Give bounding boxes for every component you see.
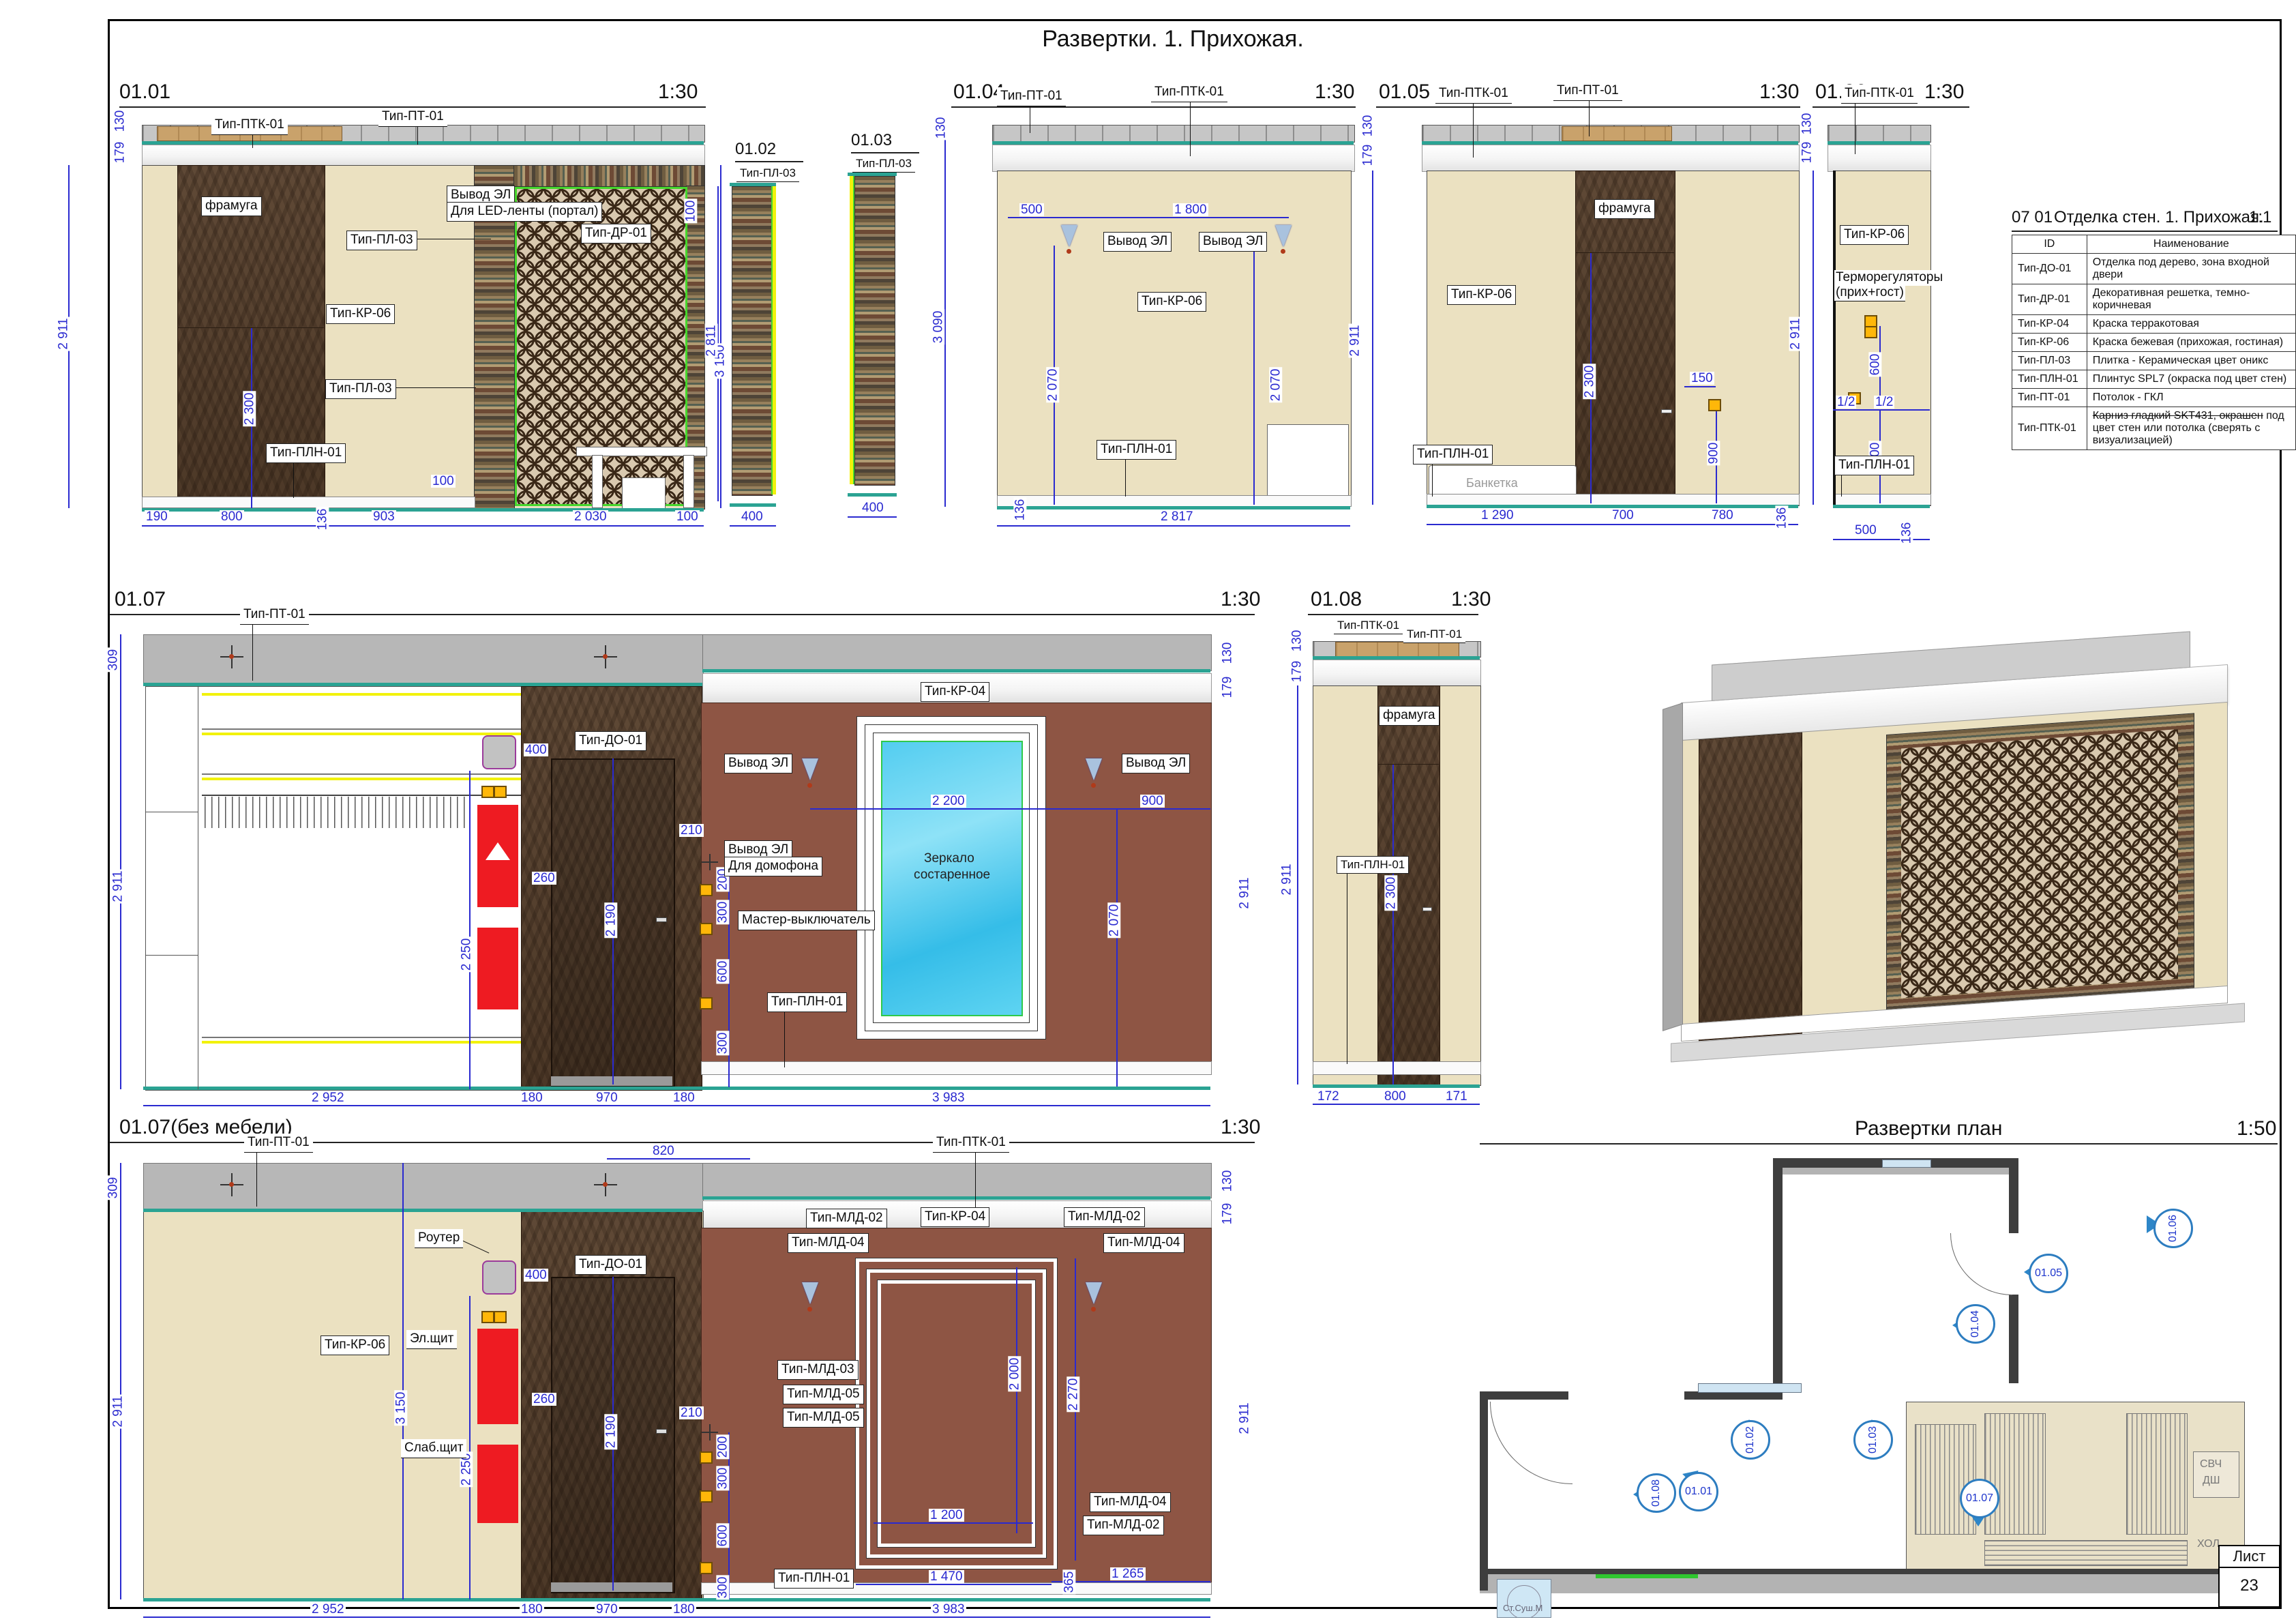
dim-1200-0107b: 1 200: [929, 1509, 964, 1522]
sconce-outlet-dot: [807, 1307, 812, 1312]
plan-marker-0105: 01.05: [2029, 1254, 2068, 1293]
legend-name: Плитка - Керамическая цвет оникс: [2087, 352, 2295, 370]
dim-2811-0102: 2 811: [705, 323, 718, 357]
wardrobe-shelf: [202, 773, 521, 775]
title-block: Лист 23: [2218, 1545, 2280, 1608]
legend-name-strike: Карниз гладкий SKT431, окрашен: [2093, 410, 2263, 422]
dim-2200-0107: 2 200: [931, 795, 966, 808]
leader: [256, 1149, 257, 1207]
leader: [252, 621, 253, 681]
ceiling-line-0106: [1828, 141, 1930, 145]
switch-icon: [700, 884, 713, 896]
ceiling-marker-dot: [603, 654, 608, 659]
cornice-0106: [1828, 145, 1931, 172]
elev-0107-scale: 1:30: [1221, 588, 1260, 611]
legend-id: Тип-КР-04: [2012, 315, 2087, 334]
plinth-0101: [142, 497, 475, 508]
top-line-0102: [730, 183, 776, 186]
dim-970-0107: 970: [595, 1091, 619, 1104]
leader: [1841, 472, 1842, 497]
plan-scale: 1:50: [2237, 1117, 2276, 1140]
label-pln-0107: Тип-ПЛН-01: [767, 992, 847, 1012]
label-pln-0105: Тип-ПЛН-01: [1413, 445, 1493, 464]
dim-line: [1016, 1267, 1017, 1533]
hanger-icon: [486, 842, 510, 860]
dim-200-0107b: 200: [716, 1435, 729, 1460]
dim-2911r-0107b: 2 911: [1238, 1401, 1251, 1435]
sconce-icon: [1275, 225, 1292, 247]
router-box: [482, 735, 516, 769]
dim-line: [997, 525, 1350, 527]
label-kr04-0107: Тип-КР-04: [921, 682, 989, 702]
plinth-0108: [1313, 1061, 1481, 1075]
label-do01-0107b: Тип-ДО-01: [575, 1255, 646, 1275]
led-strip-0103: [850, 176, 854, 484]
legend-id: Тип-КР-06: [2012, 334, 2087, 352]
label-pt-0104: Тип-ПТ-01: [997, 87, 1066, 106]
plan-wall-upper-right: [2009, 1158, 2018, 1233]
leader: [1432, 461, 1433, 497]
dim-172-0108: 172: [1316, 1090, 1341, 1103]
switch-icon: [700, 1562, 713, 1574]
plan-underline: [1480, 1143, 2278, 1145]
dim-line: [142, 525, 704, 527]
switch-icon: [700, 1451, 713, 1464]
label-vyvodR-0107: Вывод ЭЛ: [1122, 754, 1190, 773]
plan-wall-left: [1480, 1400, 1488, 1591]
plan-wall-upper-left: [1773, 1158, 1783, 1383]
dim-line: [402, 1163, 404, 1599]
plan-marker-0108: 01.08: [1637, 1473, 1676, 1513]
elev-0101-scale: 1:30: [658, 80, 698, 104]
thermostat-icon: [1864, 326, 1877, 338]
label-pt-0107: Тип-ПТ-01: [240, 606, 309, 625]
label-framuga-0105: фрамуга: [1594, 199, 1655, 219]
elev-0107b-scale: 1:30: [1221, 1116, 1260, 1139]
wardrobe-divider: [198, 686, 198, 1089]
label-pl03-0102: Тип-ПЛ-03: [736, 165, 799, 182]
legend-scale: 1:1: [2249, 208, 2271, 227]
plan-label-svch: СВЧ: [2200, 1458, 2222, 1471]
dim-600-0106: 600: [1868, 353, 1881, 377]
onyx-band-0101: [513, 165, 705, 187]
dim-2250-0107: 2 250: [460, 937, 473, 973]
dim-180a-0107b: 180: [520, 1603, 544, 1616]
drawing-sheet: Развертки. 1. Прихожая. 01.01 1:30 Тип-П…: [0, 0, 2296, 1624]
label-pt-0105: Тип-ПТ-01: [1553, 82, 1622, 101]
dim-line: [1297, 685, 1298, 1084]
dim-2911r-0107: 2 911: [1238, 876, 1251, 910]
dim-700-0105: 700: [1611, 509, 1635, 522]
dim-400-0102: 400: [740, 510, 764, 523]
dim-2070-0107: 2 070: [1107, 903, 1120, 939]
marker-text: 01.05: [2035, 1267, 2062, 1280]
dim-100mid-0101: 100: [431, 475, 456, 488]
plan-marker-0106: 01.06: [2153, 1209, 2193, 1248]
legend-name: Декоративная решетка, темно-коричневая: [2087, 284, 2295, 315]
ceiling-line-0107: [143, 683, 702, 686]
dim-260-0107b: 260: [532, 1393, 556, 1406]
dim-300b-0107b: 300: [716, 1576, 729, 1600]
dim-line: [469, 1296, 471, 1599]
dim-136-0106: 136: [1900, 521, 1913, 546]
label-ptk-0101: Тип-ПТК-01: [211, 116, 288, 135]
dim-800-0101: 800: [220, 510, 244, 523]
dim-2952-0107: 2 952: [310, 1091, 346, 1104]
dim-1265-0107b: 1 265: [1110, 1567, 1146, 1580]
dim-780-0105: 780: [1710, 509, 1735, 522]
elev-0106-scale: 1:30: [1924, 80, 1964, 104]
dim-line: [143, 1616, 1210, 1618]
dim-2911-0108: 2 911: [1281, 862, 1294, 896]
led-strip-0102: [771, 186, 776, 494]
dim-2911-0106: 2 911: [1789, 316, 1802, 351]
dim-line: [120, 634, 121, 1089]
leader: [416, 239, 491, 239]
low-current-panel: [477, 1445, 518, 1523]
dim-300b-0107: 300: [716, 1031, 729, 1056]
label-thermo2-0106: (прих+гост): [1834, 285, 1905, 301]
dim-136-0104: 136: [1013, 498, 1026, 522]
dim-2190-0107b: 2 190: [604, 1415, 617, 1450]
dim-line: [1392, 764, 1394, 1084]
label-pln-0107b: Тип-ПЛН-01: [774, 1569, 854, 1589]
plan-marker-0104: 01.04: [1956, 1304, 1995, 1344]
elev-0108-id: 01.08: [1311, 588, 1362, 611]
dim-2300-0108: 2 300: [1384, 876, 1397, 911]
dim-190-0101: 190: [145, 510, 169, 523]
label-pl03-0103: Тип-ПЛ-03: [852, 156, 915, 173]
cornice-0108: [1313, 660, 1481, 687]
plan-label-dsh: ДШ: [2203, 1475, 2220, 1487]
dim-line: [1313, 1104, 1480, 1105]
label-kr06-0105: Тип-КР-06: [1447, 285, 1516, 305]
label-pln-0108: Тип-ПЛН-01: [1337, 856, 1409, 874]
label-kr04-0107b: Тип-КР-04: [921, 1207, 989, 1227]
sconce-outlet-dot: [1091, 783, 1096, 788]
legend-name: Краска терракотовая: [2087, 315, 2295, 334]
elev-0104-scale: 1:30: [1315, 80, 1354, 104]
cabinet-0104: [1267, 424, 1349, 501]
door-handle-0107: [656, 917, 667, 922]
3d-view: [1650, 641, 2278, 1084]
plinth-0107: [701, 1061, 1212, 1075]
sconce-icon: [1086, 758, 1102, 780]
legend-name: Карниз гладкий SKT431, окрашен под цвет …: [2087, 407, 2295, 450]
plinth-0104: [997, 495, 1352, 507]
dim-600-0107: 600: [716, 960, 729, 984]
ceiling-line-0101: [142, 141, 704, 145]
dim-half2-0106: 1/2: [1874, 396, 1894, 409]
electrical-panel: [477, 1329, 518, 1424]
label-vyvod2-0104: Вывод ЭЛ: [1199, 232, 1267, 252]
sheet-title: Развертки. 1. Прихожая.: [955, 26, 1391, 53]
plinth-0105: [1427, 494, 1800, 505]
dim-800-0108: 800: [1383, 1090, 1407, 1103]
dim-970-0107b: 970: [595, 1603, 619, 1616]
dim-210-0107: 210: [679, 824, 704, 837]
legend-id: Тип-ПТ-01: [2012, 389, 2087, 407]
elev-0103-underline: [851, 152, 919, 153]
dim-100r-0101: 100: [684, 199, 697, 224]
elev-0105-scale: 1:30: [1759, 80, 1799, 104]
leader: [1190, 98, 1191, 156]
leader: [975, 1149, 976, 1213]
label-pt-0107b: Тип-ПТ-01: [244, 1134, 313, 1153]
plan-washer: Ст.Суш.М: [1497, 1579, 1551, 1618]
dim-line: [1116, 808, 1118, 1087]
dim-180b-0107b: 180: [672, 1603, 696, 1616]
label-ptk-0108: Тип-ПТК-01: [1334, 617, 1403, 634]
dim-line: [856, 1584, 1052, 1585]
label-kr06-0107b: Тип-КР-06: [320, 1335, 389, 1355]
door-handle-0105: [1661, 409, 1672, 413]
wardrobe-shelf: [202, 728, 521, 730]
tile-strip-0102: [732, 186, 773, 496]
socket-icon: [481, 786, 494, 798]
floor-line-0106: [1833, 505, 1930, 508]
top-line-0103: [848, 173, 897, 176]
elev-0102-id: 01.02: [735, 140, 776, 159]
label-framuga-0101: фрамуга: [201, 196, 262, 216]
dim-900-0107: 900: [1140, 795, 1165, 808]
dim-1470-0107b: 1 470: [929, 1570, 964, 1583]
wardrobe-shelf: [202, 1037, 521, 1038]
ceiling-line-0107r: [702, 669, 1210, 673]
low-current-panel: [477, 928, 518, 1009]
dim-2911-0105: 2 911: [1349, 323, 1362, 357]
dim-line: [720, 165, 721, 508]
led-shelf-strip: [202, 1041, 521, 1044]
label-ptk-0106: Тип-ПТК-01: [1841, 85, 1918, 104]
switch-icon: [700, 1490, 713, 1503]
label-pt-0108: Тип-ПТ-01: [1403, 626, 1465, 643]
dim-2300-0105: 2 300: [1583, 364, 1596, 400]
plan-closet-section: [1915, 1424, 1976, 1535]
dim-2911-0107b: 2 911: [112, 1394, 125, 1428]
dim-820-0107b: 820: [651, 1145, 676, 1157]
3d-wall: [1681, 702, 2228, 1042]
elev-0105-id: 01.05: [1379, 80, 1430, 104]
legend-name: Плинтус SPL7 (окраска под цвет стен): [2087, 370, 2295, 389]
tile-strip-0103: [854, 176, 895, 486]
dim-130r-0107: 130: [1221, 641, 1234, 666]
legend-underline: [2012, 231, 2278, 232]
dim-309-0107: 309: [106, 648, 119, 673]
label-do01-0107: Тип-ДО-01: [575, 731, 646, 751]
label-pl03a-0101: Тип-ПЛ-03: [346, 231, 417, 250]
plan-marker-0107: 01.07: [1960, 1479, 1999, 1518]
legend-id: Тип-ПЛН-01: [2012, 370, 2087, 389]
outlet-cross: [702, 1432, 718, 1433]
label-router-0107b: Роутер: [415, 1229, 463, 1248]
dim-900-0105: 900: [1707, 441, 1720, 466]
marker-text: 01.07: [1966, 1492, 1993, 1505]
ceiling-line-0108: [1313, 656, 1480, 660]
dim-179r-0107: 179: [1221, 675, 1234, 700]
ceiling-wood-0108: [1335, 642, 1459, 657]
sconce-icon: [1086, 1282, 1102, 1304]
dim-500-0104: 500: [1019, 203, 1044, 216]
floor-line-0107: [143, 1087, 1210, 1090]
ceiling-marker-dot: [229, 1182, 234, 1187]
dim-1290-0105: 1 290: [1480, 509, 1515, 522]
finish-legend-table: IDНаименование Тип-ДО-01Отделка под дере…: [2012, 235, 2296, 450]
cornice-0101: [142, 145, 705, 166]
dim-line: [143, 1105, 1210, 1106]
dim-400-0107b: 400: [524, 1269, 548, 1282]
dim-130-0106: 130: [1800, 112, 1813, 136]
plan-closet-section: [1984, 1413, 2046, 1535]
leader: [1473, 100, 1474, 158]
legend-id: Тип-ПЛ-03: [2012, 352, 2087, 370]
label-dr01-0101: Тип-ДР-01: [581, 224, 651, 243]
panel-joint: [1377, 764, 1439, 765]
elev-0105-underline: [1376, 106, 1800, 108]
dim-179r-0107b: 179: [1221, 1202, 1234, 1226]
label-pln-0106: Тип-ПЛН-01: [1834, 456, 1914, 475]
ceiling-line-0105: [1422, 141, 1798, 145]
hangers-row: [205, 797, 471, 828]
led-shelf-strip: [202, 733, 521, 735]
leader: [784, 1009, 785, 1067]
dim-903-0101: 903: [372, 510, 396, 523]
door-threshold: [551, 1582, 672, 1592]
ceiling-right-0107b: [702, 1163, 1212, 1198]
plan-niche: [1698, 1383, 1802, 1393]
3d-lattice: [1901, 729, 2178, 998]
ceiling-marker-dot: [603, 1182, 608, 1187]
dim-2300-0101: 2 300: [243, 392, 256, 427]
dim-130r-0107b: 130: [1221, 1169, 1234, 1194]
ceiling-line-0104: [992, 141, 1354, 145]
elev-0102-underline: [735, 161, 803, 162]
ceiling-line-0107b: [143, 1209, 702, 1212]
floor-line-0103: [848, 493, 897, 497]
plan-closet-shelf: [1984, 1540, 2188, 1566]
dim-line: [1372, 171, 1373, 505]
console-leg-0101: [683, 455, 694, 508]
plan-title: Развертки план: [1855, 1117, 2002, 1140]
dim-line: [1427, 524, 1798, 525]
dim-2817-0104: 2 817: [1159, 510, 1195, 523]
legend-name: Отделка под дерево, зона входной двери: [2087, 254, 2295, 284]
panel-joint: [177, 327, 324, 328]
door-handle-0107b: [656, 1429, 667, 1434]
dim-line: [1833, 409, 1930, 411]
legend-col-name: Наименование: [2087, 235, 2295, 254]
ceiling-line-0107br: [702, 1196, 1210, 1200]
marker-text: 01.04: [1969, 1310, 1982, 1338]
legend-name: Краска бежевая (прихожая, гостиная): [2087, 334, 2295, 352]
elev-0108-underline: [1308, 614, 1478, 615]
console-pedestal-0101: [622, 477, 666, 509]
ceiling-right-0107: [702, 634, 1212, 671]
dim-100b-0101: 100: [675, 510, 700, 523]
led-shelf-strip: [202, 693, 521, 696]
label-mld05b-0107b: Тип-МЛД-05: [783, 1408, 864, 1428]
plan-green-strip: [1596, 1574, 1698, 1578]
label-vyvod1-0104: Вывод ЭЛ: [1103, 232, 1172, 252]
plinth-0106: [1833, 494, 1931, 505]
leader: [1347, 873, 1347, 1064]
label-mld05a-0107b: Тип-МЛД-05: [783, 1385, 864, 1404]
dim-309-0107b: 309: [106, 1176, 119, 1200]
label-led2-0101: Для LED-ленты (портал): [447, 202, 602, 222]
leader: [1125, 457, 1126, 497]
router-box: [482, 1260, 516, 1295]
dim-line: [1008, 217, 1289, 218]
ceiling-strip-0106: [1828, 125, 1931, 143]
dim-line: [730, 525, 776, 527]
label-domofon2-0107: Для домофона: [724, 857, 822, 876]
panel-joint: [1575, 252, 1674, 253]
door-handle-0108: [1422, 907, 1432, 911]
ceiling-wood-0105: [1562, 126, 1672, 141]
leader: [1030, 102, 1030, 133]
dim-130-0105: 130: [1361, 114, 1374, 138]
plan-marker-0103: 01.03: [1853, 1420, 1893, 1460]
leader: [396, 387, 476, 388]
elev-0103-id: 01.03: [851, 131, 892, 150]
elev-0101-id: 01.01: [119, 80, 170, 104]
dim-1800-0104: 1 800: [1173, 203, 1208, 216]
label-vyvodL-0107: Вывод ЭЛ: [724, 754, 792, 773]
label-ptk-0105: Тип-ПТК-01: [1435, 85, 1512, 104]
dim-210-0107b: 210: [679, 1406, 704, 1419]
dim-2070b-0104: 2 070: [1269, 368, 1282, 403]
thermostat-icon: [1708, 399, 1721, 411]
wardrobe-shelf: [145, 812, 198, 812]
legend-id: Тип-ДО-01: [2012, 254, 2087, 284]
dim-3983-0107: 3 983: [931, 1091, 966, 1104]
label-kr06-0106: Тип-КР-06: [1840, 225, 1909, 245]
dim-171-0108: 171: [1444, 1090, 1469, 1103]
dim-line: [607, 1158, 750, 1160]
sconce-icon: [802, 758, 818, 780]
label-mld02b-0107b: Тип-МЛД-02: [1064, 1207, 1145, 1227]
plan-closet-section: [2126, 1413, 2188, 1535]
leader: [1855, 100, 1855, 154]
dim-line: [874, 1522, 1033, 1524]
label-pln-0101: Тип-ПЛН-01: [266, 443, 346, 463]
dim-2190-0107: 2 190: [604, 903, 617, 939]
plan-label-washer: Ст.Суш.М: [1503, 1603, 1542, 1613]
socket-icon: [494, 1311, 507, 1323]
sheet-label: Лист: [2220, 1546, 2279, 1568]
label-thermo1-0106: Терморегуляторы: [1834, 270, 1944, 286]
label-pln-0104: Тип-ПЛН-01: [1097, 440, 1176, 460]
label-ptk-0107b: Тип-ПТК-01: [933, 1134, 1009, 1153]
dim-260-0107: 260: [532, 872, 556, 885]
sconce-icon: [1061, 225, 1077, 247]
leader: [1589, 97, 1590, 136]
dim-3983-0107b: 3 983: [931, 1603, 966, 1616]
dim-line: [120, 1163, 121, 1599]
3d-side-return: [1663, 703, 1683, 1031]
hanger-rod: [202, 795, 521, 796]
dim-179-0105: 179: [1361, 143, 1374, 168]
label-mld04c-0107b: Тип-МЛД-04: [1090, 1492, 1171, 1512]
dim-180b-0107: 180: [672, 1091, 696, 1104]
plan-wall-bottom: [1480, 1569, 2278, 1574]
ceiling-marker-dot: [229, 654, 234, 659]
marker-text: 01.08: [1650, 1479, 1663, 1507]
dim-2030-0101: 2 030: [573, 510, 608, 523]
dim-150-0105: 150: [1690, 372, 1714, 385]
dim-500-0106: 500: [1853, 524, 1878, 537]
label-mld04a-0107b: Тип-МЛД-04: [788, 1233, 869, 1253]
